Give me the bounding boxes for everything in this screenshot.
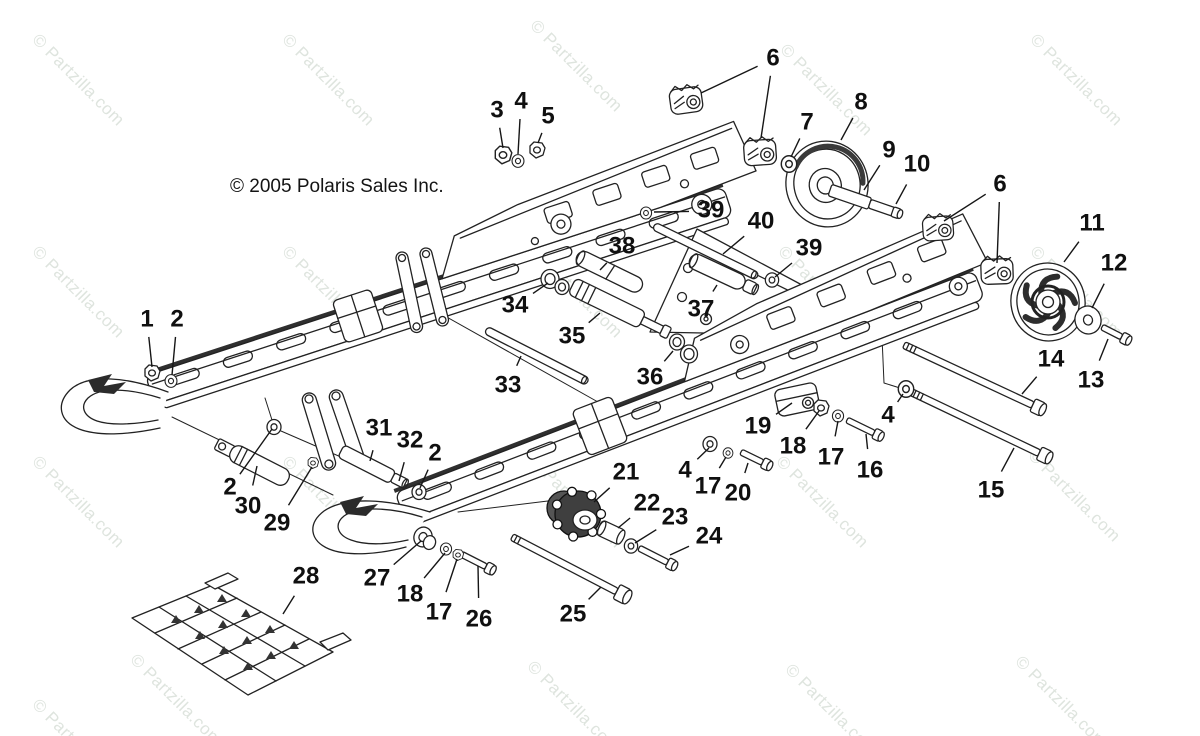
- leader-line: [719, 457, 726, 468]
- leader-line: [149, 337, 152, 367]
- leader-line: [701, 66, 758, 93]
- leader-line: [618, 518, 630, 528]
- leader-line: [478, 566, 479, 598]
- drive-sprocket-21: [547, 487, 627, 545]
- leader-line: [538, 133, 542, 143]
- leader-line: [283, 596, 294, 614]
- bolt-15: [908, 386, 1055, 466]
- leader-line: [670, 546, 689, 555]
- rail-assembly-rear: [313, 212, 1002, 554]
- track-section-28: [132, 573, 351, 695]
- leader-line: [1092, 284, 1104, 308]
- leader-line: [866, 434, 868, 449]
- rear-idler-wheel: [1004, 256, 1093, 348]
- leader-line: [697, 448, 709, 459]
- leader-line: [289, 467, 313, 505]
- leader-line: [589, 313, 600, 323]
- leader-line: [518, 119, 520, 154]
- bolt-20: [739, 447, 775, 472]
- bolt-16: [845, 415, 886, 443]
- front-arm-assembly: [213, 388, 411, 491]
- shaft-31: [338, 445, 411, 491]
- leader-line: [1099, 339, 1108, 361]
- bolt-24: [637, 543, 680, 572]
- shaft-33: [484, 326, 589, 385]
- leader-line: [1022, 377, 1037, 394]
- leader-line: [841, 118, 853, 140]
- leader-line: [664, 351, 673, 361]
- shock-absorber-35: [568, 278, 673, 342]
- leader-line: [1001, 448, 1014, 472]
- leader-line: [1064, 242, 1079, 262]
- leader-line: [446, 559, 457, 592]
- bushing-22: [596, 520, 627, 546]
- leader-line: [806, 411, 819, 429]
- bolt-13: [1100, 322, 1134, 347]
- leader-line: [635, 530, 656, 543]
- shock-30: [213, 436, 292, 488]
- bolt-14: [901, 339, 1048, 418]
- leader-line: [745, 463, 748, 473]
- leader-line: [761, 76, 770, 138]
- suspension-exploded-diagram: [0, 0, 1200, 736]
- parts-diagram-page: © Partzilla.com© Partzilla.com© Partzill…: [0, 0, 1200, 736]
- leader-line: [835, 421, 838, 436]
- leader-line: [500, 128, 503, 148]
- leader-line: [654, 211, 689, 212]
- leader-line: [589, 587, 601, 599]
- copyright-text: © 2005 Polaris Sales Inc.: [230, 176, 444, 198]
- leader-line: [896, 184, 907, 204]
- leader-line: [424, 553, 445, 578]
- leader-line: [997, 202, 999, 263]
